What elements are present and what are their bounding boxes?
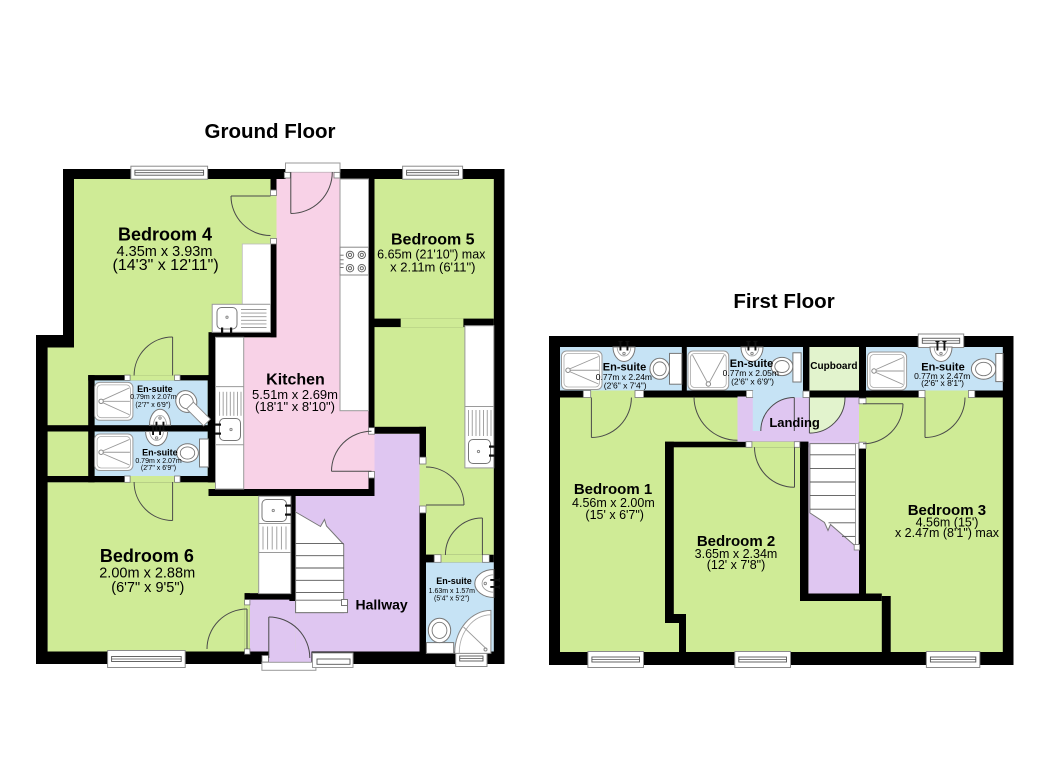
svg-text:En-suite: En-suite <box>436 576 472 586</box>
svg-text:Hallway: Hallway <box>356 596 408 612</box>
svg-text:Cupboard: Cupboard <box>810 361 857 372</box>
svg-text:(15' x 6'7"): (15' x 6'7") <box>585 508 644 522</box>
svg-text:(2'7" x 6'9"): (2'7" x 6'9") <box>141 465 176 472</box>
svg-text:0.79m x 2.07m: 0.79m x 2.07m <box>130 394 176 401</box>
svg-text:Landing: Landing <box>769 415 820 430</box>
svg-text:Ground Floor: Ground Floor <box>205 120 336 143</box>
svg-text:(18'1" x 8'10"): (18'1" x 8'10") <box>255 399 335 414</box>
svg-text:(12' x 7'8"): (12' x 7'8") <box>707 558 766 572</box>
svg-text:(2'7" x 6'9"): (2'7" x 6'9") <box>135 402 170 409</box>
svg-text:(5'4" x 5'2"): (5'4" x 5'2") <box>434 596 469 603</box>
svg-text:En-suite: En-suite <box>142 447 178 457</box>
svg-text:(2'6" x 6'9"): (2'6" x 6'9") <box>731 377 774 387</box>
svg-text:(2'6" x 7'4"): (2'6" x 7'4") <box>604 380 647 390</box>
svg-text:0.79m x 2.07m: 0.79m x 2.07m <box>135 458 181 465</box>
svg-text:Bedroom 6: Bedroom 6 <box>100 546 194 566</box>
svg-text:Bedroom 4: Bedroom 4 <box>118 225 212 245</box>
svg-text:(2'6" x 8'1"): (2'6" x 8'1") <box>921 378 964 388</box>
svg-text:(14'3" x 12'11"): (14'3" x 12'11") <box>113 257 219 274</box>
svg-text:1.63m x 1.57m: 1.63m x 1.57m <box>429 588 475 595</box>
svg-text:Bedroom 5: Bedroom 5 <box>391 231 475 248</box>
svg-text:First Floor: First Floor <box>733 290 834 313</box>
svg-text:En-suite: En-suite <box>137 384 173 394</box>
svg-text:x 2.11m (6'11"): x 2.11m (6'11") <box>390 259 475 274</box>
svg-text:(6'7" x 9'5"): (6'7" x 9'5") <box>111 580 184 596</box>
svg-text:x 2.47m (8'1") max: x 2.47m (8'1") max <box>895 526 1000 540</box>
